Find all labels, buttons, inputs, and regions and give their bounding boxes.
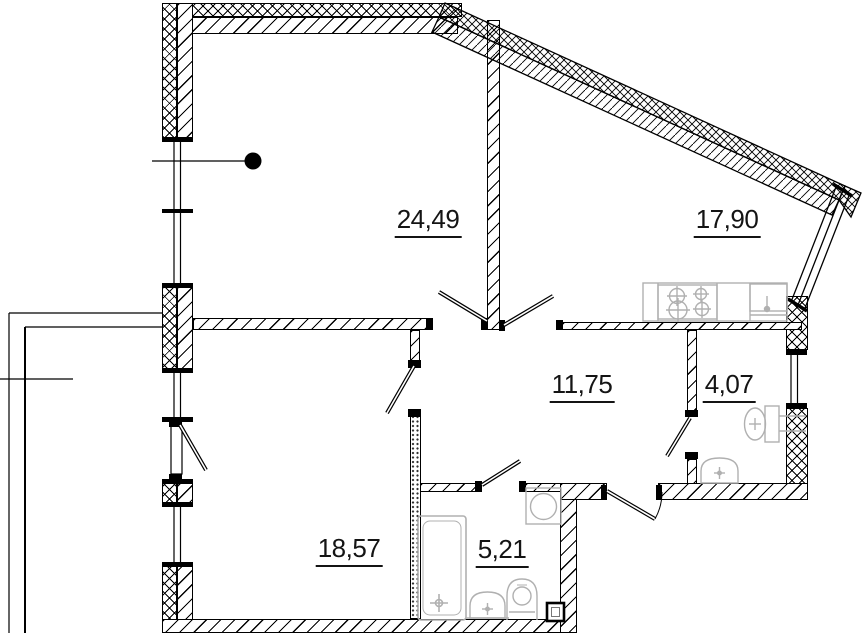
kitchen-sink-icon: [750, 284, 787, 315]
stove-icon: [658, 285, 717, 322]
room-area-label-11-75: 11,75: [550, 371, 615, 403]
room-area-label-18-57: 18,57: [316, 535, 383, 567]
wall-top-diagonal: [432, 3, 861, 217]
room-area-label-4-07: 4,07: [703, 371, 756, 403]
room-area-label-24-49: 24,49: [395, 206, 462, 238]
washbasin-icon: [701, 458, 738, 483]
window-icon: [160, 502, 196, 567]
toilet-icon: [507, 579, 537, 620]
balcony-door-icon: [160, 417, 196, 484]
door-swing-icon: [180, 292, 690, 519]
floor-plan: 24,49 17,90 11,75 4,07 18,57 5,21: [0, 0, 866, 633]
window-icon: [160, 137, 196, 288]
room-area-label-17-90: 17,90: [694, 206, 761, 238]
balcony-icon: [0, 313, 163, 633]
vent-box-icon: [547, 603, 564, 621]
plan-linework: [0, 0, 866, 633]
toilet-icon: [745, 406, 807, 442]
washbasin-icon: [466, 592, 509, 618]
room-area-label-5-21: 5,21: [476, 536, 529, 568]
bathtub-icon: [418, 516, 466, 620]
balcony-window-icon: [160, 368, 196, 420]
washing-machine-icon: [526, 488, 561, 524]
window-icon: [784, 349, 810, 409]
